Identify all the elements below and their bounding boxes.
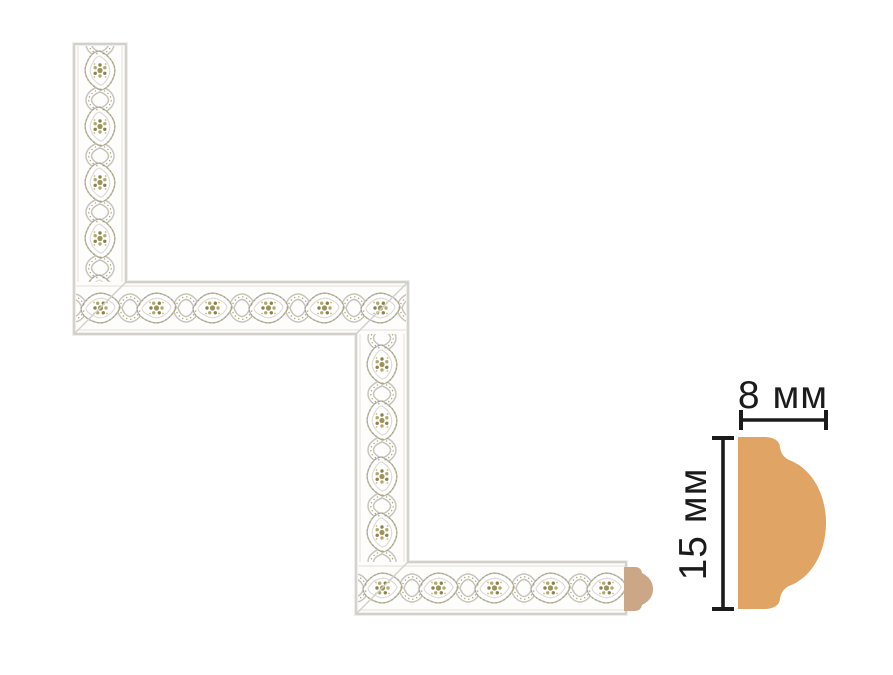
product-illustration: 8 мм 15 мм bbox=[0, 0, 893, 675]
molding-segment-horizontal-lower bbox=[356, 562, 626, 614]
width-dimension-label: 8 мм bbox=[738, 374, 828, 417]
molding-sample bbox=[74, 44, 653, 614]
product-image-canvas: 8 мм 15 мм bbox=[0, 0, 893, 675]
molding-segment-horizontal-upper bbox=[74, 282, 408, 334]
dimension-diagram: 8 мм 15 мм bbox=[672, 374, 828, 609]
molding-end-cap bbox=[624, 567, 653, 611]
height-dimension-label: 15 мм bbox=[672, 468, 715, 581]
profile-cross-section bbox=[738, 437, 826, 609]
